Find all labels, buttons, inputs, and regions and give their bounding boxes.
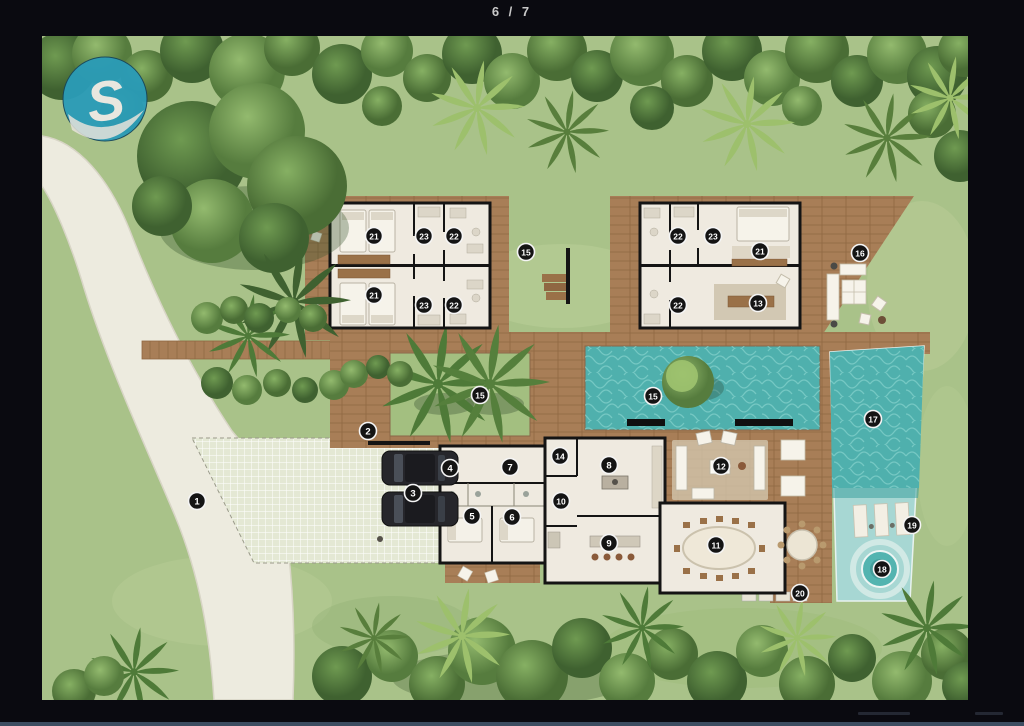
plan-marker-8: 8	[601, 457, 618, 474]
svg-text:13: 13	[753, 298, 763, 308]
svg-text:3: 3	[410, 488, 415, 499]
statusbar	[0, 722, 1024, 726]
brand-logo: S	[63, 57, 147, 141]
site-plan-image[interactable]: S 12345678910111213141515151617181920212…	[42, 36, 968, 700]
plan-marker-21: 21	[752, 243, 769, 260]
plan-marker-1: 1	[189, 493, 206, 510]
svg-text:15: 15	[648, 391, 658, 401]
plan-marker-20: 20	[792, 585, 809, 602]
sun-loungers	[853, 503, 910, 538]
svg-text:23: 23	[419, 300, 429, 310]
plan-marker-15: 15	[518, 244, 535, 261]
plan-marker-22: 22	[446, 228, 463, 245]
plan-marker-21: 21	[366, 228, 383, 245]
plan-marker-9: 9	[601, 535, 618, 552]
svg-text:7: 7	[507, 462, 512, 473]
plan-marker-13: 13	[750, 295, 767, 312]
viewer-backdrop: { "viewer": { "counter": "6 / 7", "backg…	[0, 0, 1024, 726]
image-viewer: 6 / 7	[0, 0, 1024, 726]
plan-marker-23: 23	[705, 228, 722, 245]
plan-marker-15: 15	[472, 387, 489, 404]
plan-marker-3: 3	[405, 485, 422, 502]
plan-marker-5: 5	[464, 508, 481, 525]
svg-text:15: 15	[475, 390, 485, 400]
svg-text:8: 8	[606, 460, 611, 471]
plan-marker-22: 22	[446, 297, 463, 314]
svg-text:6: 6	[509, 512, 514, 523]
plan-marker-2: 2	[360, 423, 377, 440]
svg-text:10: 10	[556, 496, 566, 506]
plan-marker-22: 22	[670, 297, 687, 314]
svg-text:11: 11	[712, 540, 721, 550]
plan-marker-11: 11	[708, 537, 725, 554]
image-counter: 6 / 7	[0, 4, 1024, 19]
right-guest-pavilion	[640, 203, 800, 328]
svg-text:12: 12	[716, 461, 726, 471]
plan-marker-17: 17	[865, 411, 882, 428]
plan-marker-4: 4	[442, 460, 459, 477]
svg-text:14: 14	[555, 451, 565, 461]
svg-text:4: 4	[447, 463, 453, 474]
svg-text:21: 21	[755, 246, 765, 256]
svg-text:22: 22	[449, 231, 459, 241]
svg-text:23: 23	[708, 231, 718, 241]
svg-text:22: 22	[673, 231, 683, 241]
svg-text:2: 2	[365, 426, 370, 437]
svg-text:22: 22	[673, 300, 683, 310]
svg-text:18: 18	[877, 564, 887, 574]
plan-marker-14: 14	[552, 448, 569, 465]
svg-text:23: 23	[419, 231, 429, 241]
svg-text:1: 1	[194, 496, 200, 507]
statusbar-smudge	[858, 712, 910, 715]
plan-marker-19: 19	[904, 517, 921, 534]
svg-text:20: 20	[795, 588, 805, 598]
plan-marker-12: 12	[713, 458, 730, 475]
svg-text:19: 19	[907, 520, 917, 530]
svg-text:21: 21	[369, 290, 379, 300]
plan-marker-7: 7	[502, 459, 519, 476]
svg-text:15: 15	[521, 247, 531, 257]
plan-marker-18: 18	[874, 561, 891, 578]
svg-text:16: 16	[855, 248, 865, 258]
plan-marker-23: 23	[416, 228, 433, 245]
plan-marker-10: 10	[553, 493, 570, 510]
plan-marker-22: 22	[670, 228, 687, 245]
reflection-pond	[585, 346, 820, 430]
plan-marker-6: 6	[504, 509, 521, 526]
plan-marker-23: 23	[416, 297, 433, 314]
svg-text:17: 17	[868, 414, 878, 424]
svg-text:21: 21	[369, 231, 379, 241]
svg-text:5: 5	[469, 511, 475, 522]
plan-marker-15: 15	[645, 388, 662, 405]
svg-text:9: 9	[606, 538, 611, 549]
svg-text:22: 22	[449, 300, 459, 310]
plan-marker-16: 16	[852, 245, 869, 262]
plan-marker-21: 21	[366, 287, 383, 304]
statusbar-smudge	[975, 712, 1003, 715]
